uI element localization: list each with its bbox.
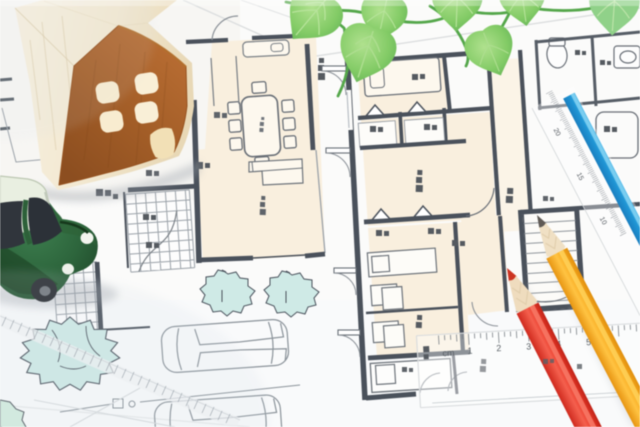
svg-text:cm: cm — [442, 348, 455, 359]
svg-text:1: 1 — [467, 346, 473, 356]
svg-text:3: 3 — [526, 341, 532, 351]
svg-text:2: 2 — [496, 343, 502, 353]
